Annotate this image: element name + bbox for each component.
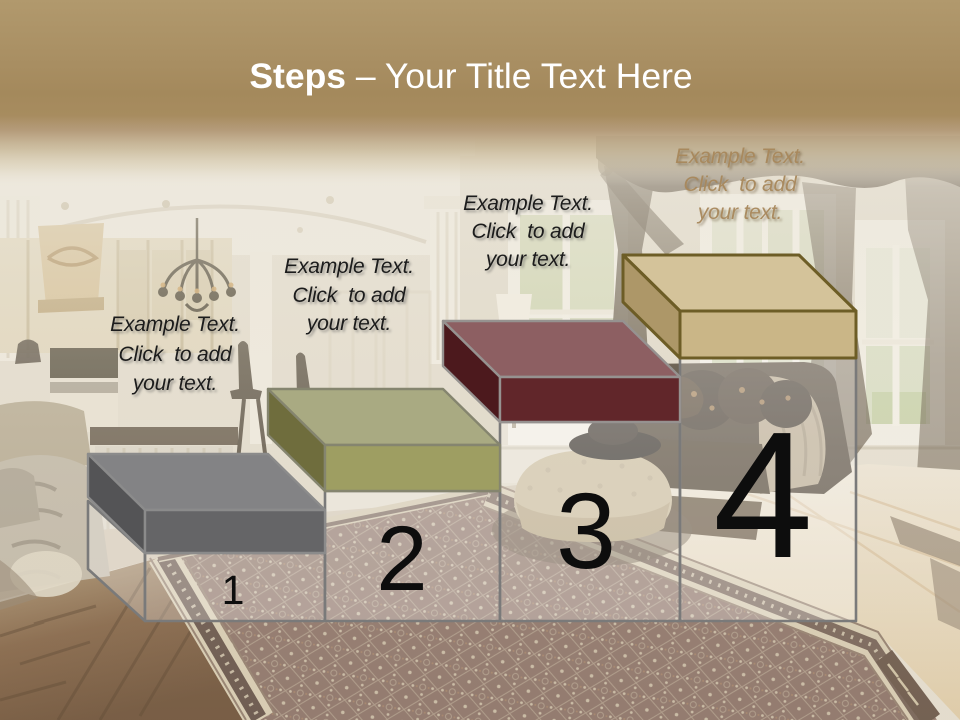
svg-text:3: 3: [556, 470, 616, 591]
svg-text:Example Text.: Example Text.: [675, 145, 805, 168]
svg-text:your text.: your text.: [131, 372, 217, 395]
svg-text:Click to add: Click to add: [684, 173, 798, 196]
svg-text:Example Text.: Example Text.: [463, 192, 593, 215]
svg-text:4: 4: [713, 395, 813, 596]
svg-text:your text.: your text.: [484, 248, 570, 271]
svg-text:Steps – Your Title Text Here: Steps – Your Title Text Here: [249, 56, 692, 96]
svg-text:1: 1: [222, 567, 245, 613]
svg-text:your text.: your text.: [696, 201, 782, 224]
svg-text:Example Text.: Example Text.: [110, 313, 240, 336]
svg-text:Click to add: Click to add: [472, 220, 586, 243]
svg-text:Click to add: Click to add: [119, 343, 233, 366]
svg-text:your text.: your text.: [305, 312, 391, 335]
svg-text:Click to add: Click to add: [293, 284, 407, 307]
svg-text:Example Text.: Example Text.: [284, 255, 414, 278]
svg-text:2: 2: [376, 508, 427, 610]
